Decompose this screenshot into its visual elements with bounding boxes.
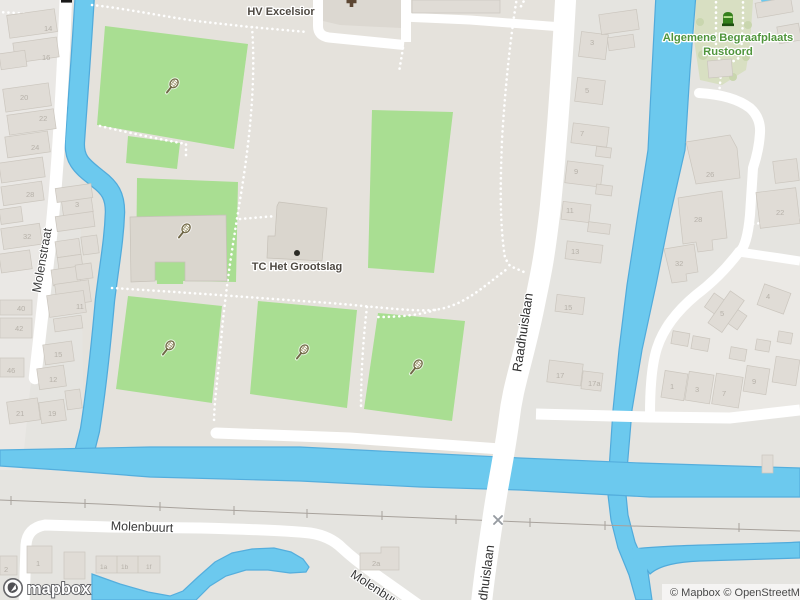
svg-text:32: 32 [675,259,683,268]
svg-text:3: 3 [590,38,594,47]
svg-text:15: 15 [54,350,62,359]
svg-text:3: 3 [695,385,699,394]
svg-text:© Mapbox © OpenStreetMap: © Mapbox © OpenStreetMap [670,587,800,599]
svg-text:14: 14 [44,24,52,33]
svg-text:28: 28 [694,215,702,224]
svg-text:13: 13 [571,247,579,256]
svg-text:22: 22 [776,208,784,217]
svg-text:1b: 1b [121,564,129,571]
svg-text:42: 42 [15,324,23,333]
svg-text:2a: 2a [372,559,381,568]
svg-text:21: 21 [16,409,24,418]
svg-text:2: 2 [4,565,8,574]
svg-text:4: 4 [766,292,770,301]
svg-text:12: 12 [49,375,57,384]
svg-text:40: 40 [17,304,25,313]
svg-text:5: 5 [720,309,724,318]
svg-text:TC Het Grootslag: TC Het Grootslag [252,261,342,273]
svg-text:15: 15 [564,303,572,312]
svg-text:9: 9 [574,167,578,176]
svg-text:Algemene Begraafplaats: Algemene Begraafplaats [663,32,794,44]
svg-text:3: 3 [75,200,79,209]
svg-text:1a: 1a [100,564,108,571]
svg-text:9: 9 [752,377,756,386]
svg-text:7: 7 [722,389,726,398]
svg-text:mapbox: mapbox [27,580,91,598]
svg-text:HV Excelsior: HV Excelsior [247,6,315,18]
svg-text:17: 17 [556,371,564,380]
svg-text:5: 5 [585,86,589,95]
svg-text:1f: 1f [146,564,152,571]
svg-text:26: 26 [706,170,714,179]
svg-text:28: 28 [26,190,34,199]
svg-text:32: 32 [23,232,31,241]
svg-text:Molenbuurt: Molenbuurt [111,519,175,535]
svg-text:24: 24 [31,143,39,152]
svg-text:11: 11 [76,302,84,311]
svg-text:20: 20 [20,93,28,102]
svg-text:16: 16 [42,53,50,62]
svg-text:46: 46 [7,366,15,375]
svg-text:17a: 17a [588,379,601,388]
svg-text:7: 7 [580,129,584,138]
svg-text:Rustoord: Rustoord [703,46,753,58]
svg-text:19: 19 [48,409,56,418]
svg-text:1: 1 [670,382,674,391]
svg-text:1: 1 [36,559,40,568]
svg-text:22: 22 [39,114,47,123]
svg-text:11: 11 [566,206,574,215]
